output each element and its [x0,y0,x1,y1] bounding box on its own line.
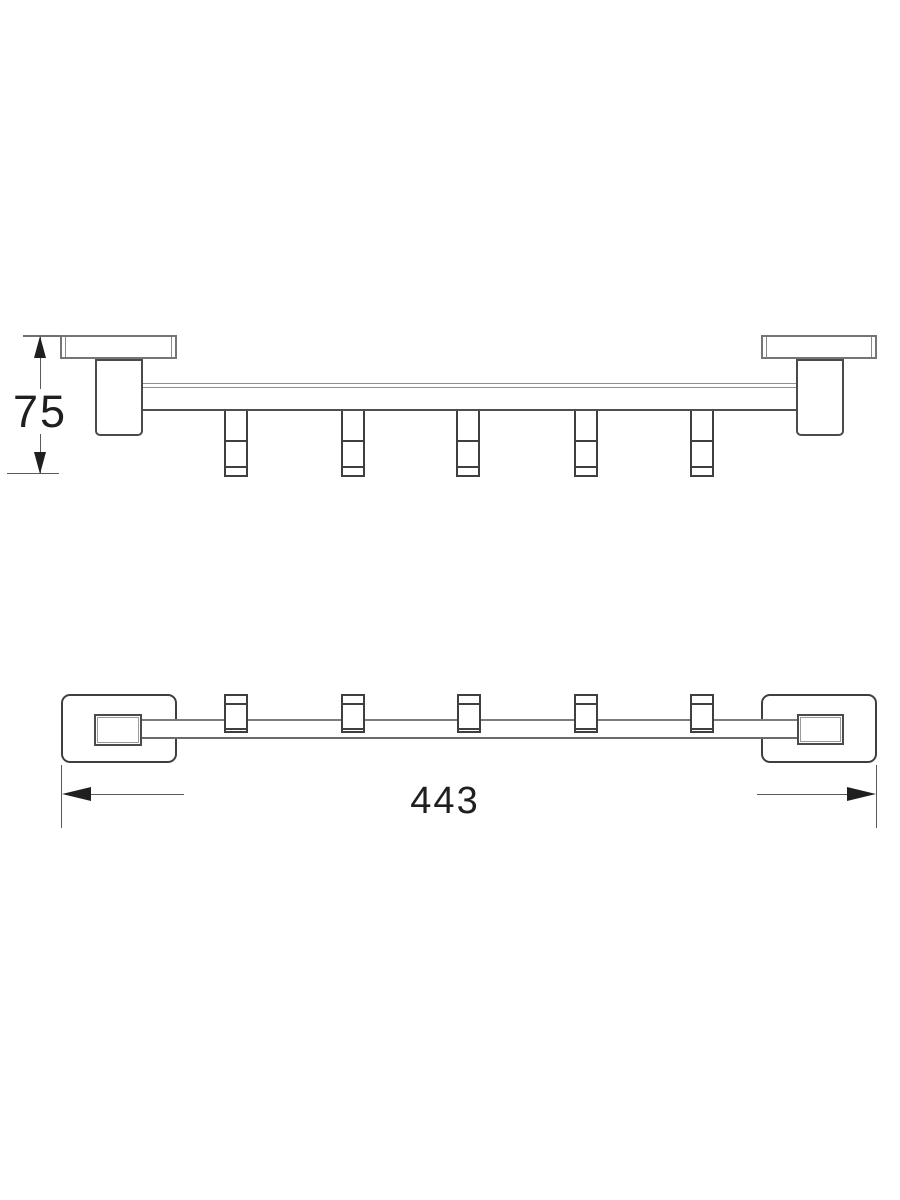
tab-segment-line [226,728,246,730]
tab-segment-line [226,703,246,705]
hook-front-5 [690,411,714,477]
hook-front-4 [574,411,598,477]
tab-segment-line [692,728,712,730]
tab-segment-line [576,703,596,705]
plan-view: 443 [0,560,900,960]
tab-segment-line [576,728,596,730]
hook-segment-line [692,440,712,442]
tab-segment-line [459,728,479,730]
front-view: 75 [0,0,900,560]
arrow-up-icon [34,336,46,358]
plate-bevel-line [171,337,172,357]
tab-segment-line [459,703,479,705]
width-dimension-label: 443 [395,782,495,820]
hook-plan-4 [574,694,598,733]
hook-plan-3 [457,694,481,733]
hook-segment-line [226,466,246,468]
plate-bevel-line [766,337,767,357]
hook-segment-line [576,466,596,468]
tab-segment-line [692,703,712,705]
hook-plan-2 [341,694,365,733]
height-dimension-label: 75 [2,389,78,434]
mount-post-right-front [796,359,844,436]
dimension-line-left-segment [91,794,184,795]
hook-plan-1 [224,694,248,733]
hook-segment-line [343,466,363,468]
arrow-down-icon [34,452,46,474]
hook-segment-line [576,440,596,442]
dimension-extension-line-bottom [7,473,59,474]
hook-front-1 [224,411,248,477]
mount-post-right-plan [797,714,844,745]
plate-bevel-line [65,337,66,357]
wall-plate-left-front [60,335,177,359]
mount-post-left-plan [94,714,142,746]
hook-segment-line [458,466,478,468]
plate-bevel-line [871,337,872,357]
tab-segment-line [343,703,363,705]
hook-front-3 [456,411,480,477]
hook-plan-5 [690,694,714,733]
bar-highlight-line [143,387,796,388]
mount-inner-line [800,717,841,742]
mount-inner-line [97,717,139,743]
arrow-right-icon [847,787,876,801]
hook-segment-line [343,440,363,442]
wall-plate-right-front [761,335,877,359]
dimension-extension-line-right [876,765,877,828]
tab-segment-line [343,728,363,730]
hook-segment-line [692,466,712,468]
hook-front-2 [341,411,365,477]
technical-drawing: 75 [0,0,900,1200]
rail-bar-front [143,383,796,411]
hook-segment-line [458,440,478,442]
dimension-line-right-segment [757,794,847,795]
arrow-left-icon [62,787,91,801]
hook-segment-line [226,440,246,442]
mount-post-left-front [95,359,143,436]
